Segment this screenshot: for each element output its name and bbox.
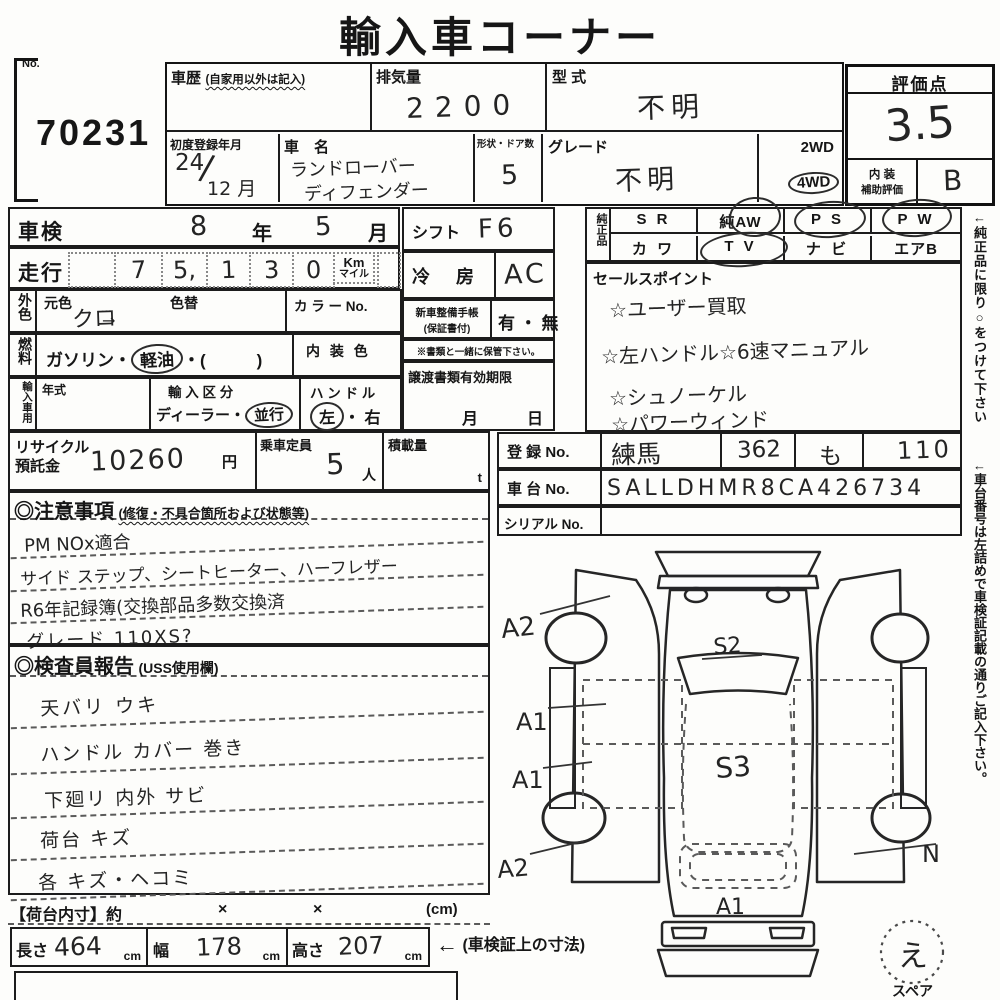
displacement-cell: 排気量 2200 xyxy=(372,64,547,132)
base-color-label: 元色 xyxy=(44,293,72,313)
handle-left-circled: 左 xyxy=(309,401,344,432)
mark-n: N xyxy=(922,840,940,868)
service-book-label-1: 新車整備手帳 xyxy=(404,305,490,320)
model-code-label: 型 式 xyxy=(552,66,586,87)
doors-cell: 形状・ドア数 5 xyxy=(475,134,543,202)
divider xyxy=(292,335,294,375)
history-cell: 車歴 (自家用以外は記入) xyxy=(167,64,372,132)
mileage-digit: 3 xyxy=(263,256,279,285)
length-label: 長さ xyxy=(16,937,48,961)
ac-box: 冷 房 AC xyxy=(402,251,555,299)
import-parallel-circled: 並行 xyxy=(244,401,293,429)
color-change-label: 色替 xyxy=(170,293,198,313)
windshield xyxy=(678,653,798,694)
recycle-row: リサイクル 預託金 10260 円 乗車定員 5 人 積載量 t xyxy=(8,431,490,491)
margin-note-oem: ←純正品に限り○をつけて下さい xyxy=(970,210,989,470)
fuel-other: ・( ) xyxy=(183,351,262,370)
mark-a2-front: A2 xyxy=(500,612,537,645)
load-label: 積載量 xyxy=(388,435,427,454)
service-book-label-2: (保証書付) xyxy=(404,320,490,335)
car-name-cell: 車 名 ランドローバー ディフェンダー xyxy=(280,134,475,202)
left-arrow-icon: ← xyxy=(436,932,458,957)
length-value: 464 xyxy=(54,931,103,962)
vin-label: 車 台 No. xyxy=(499,471,602,504)
grade-label: グレード xyxy=(548,136,608,157)
auction-sheet: 輸入車コーナー No. 70231 車歴 (自家用以外は記入) 排気量 2200… xyxy=(0,0,1000,1000)
divider xyxy=(149,379,151,429)
sales-point-line: ☆ユーザー買取 xyxy=(609,290,747,324)
transfer-docs-label: 譲渡書類有効期限 xyxy=(408,367,512,386)
fuel-row: 燃料 ガソリン・軽油・( ) 内 装 色 xyxy=(8,333,402,377)
exterior-vertical-label: 外色 xyxy=(10,291,37,331)
cargo-label: 【荷台内寸】約 xyxy=(10,901,122,925)
mark-a1-mid1: A1 xyxy=(516,708,548,736)
first-registration-month: 12 月 xyxy=(207,174,256,201)
mileage-empty-cell xyxy=(377,252,401,288)
oem-item-airbag: エアB xyxy=(872,236,960,260)
handle-dot: ・ xyxy=(344,410,360,427)
inspector-report-box: ◎検査員報告 (USS使用欄) 天バリ ウキ ハンドル カバー 巻き 下廻リ 内… xyxy=(8,645,490,895)
vin-row: 車 台 No. SALLDHMR8CA426734 xyxy=(497,469,962,506)
recycle-value: 10260 xyxy=(89,443,186,477)
transfer-docs-box: 譲渡書類有効期限 月 日 xyxy=(402,361,555,431)
registration-area: 練馬 xyxy=(610,434,661,472)
interior-color-label: 内 装 色 xyxy=(306,341,371,361)
shaken-year-unit: 年 xyxy=(252,217,272,246)
import-class-value: ディーラー・並行 xyxy=(156,402,293,428)
score-value: 3.5 xyxy=(846,89,994,163)
cargo-unit: (cm) xyxy=(426,901,458,918)
right-sill xyxy=(901,668,926,808)
spare-label: スペア xyxy=(892,983,933,999)
mileage-row: 走行 7 5, 1 3 0 Km マイル xyxy=(8,247,400,289)
notes-box: ◎注意事項 (修復・不具合箇所および状態等) PM NOx適合 サイド ステップ… xyxy=(8,491,490,645)
first-registration-cell: 初度登録年月 24 / 12 月 xyxy=(167,134,280,202)
shift-label: シフト xyxy=(412,219,460,243)
drive-2wd-label: 2WD xyxy=(801,139,834,156)
lot-number: 70231 xyxy=(36,112,151,154)
divider xyxy=(299,379,301,429)
report-subtitle: (USS使用欄) xyxy=(138,660,218,676)
registration-number: 110 xyxy=(897,435,953,465)
mileage-digit: 1 xyxy=(220,256,236,285)
mileage-unit-km: Km xyxy=(335,256,373,269)
registration-row: 登 録 No. 練馬 362 も 110 xyxy=(497,432,962,469)
mark-a2-rear: A2 xyxy=(496,853,530,884)
score-box: 評価点 3.5 内 装 補助評価 B xyxy=(845,64,995,206)
import-vertical-label: 輸入車用 xyxy=(10,379,37,429)
interior-score-label-1: 内 装 xyxy=(848,166,916,182)
ac-label: 冷 房 xyxy=(404,253,496,297)
mileage-digit-cell: 5, xyxy=(161,252,208,288)
shaken-label: 車検 xyxy=(18,216,64,246)
rear-window-inner xyxy=(690,854,786,880)
shift-box: シフト F6 xyxy=(402,207,555,251)
height-unit: cm xyxy=(405,949,422,963)
front-bumper xyxy=(656,552,820,576)
import-dealer-option: ディーラー xyxy=(156,407,230,424)
fuel-vertical-label: 燃料 xyxy=(10,335,37,375)
mileage-label: 走行 xyxy=(18,257,64,287)
rear-bumper xyxy=(662,922,814,946)
divider xyxy=(382,433,384,489)
transfer-month-label: 月 xyxy=(462,405,478,429)
car-name-label: 車 名 xyxy=(284,136,329,157)
car-damage-diagram: A2 A1 A1 A2 N S2 S3 A1 え スペア xyxy=(488,538,962,1000)
rear-window-outer xyxy=(680,844,796,888)
ac-value: AC xyxy=(503,258,547,290)
doors-label: 形状・ドア数 xyxy=(477,136,534,150)
divider xyxy=(862,434,864,467)
grade-cell: グレード 不明 xyxy=(543,134,759,202)
fuel-diesel-circled: 軽油 xyxy=(130,343,183,376)
width-unit: cm xyxy=(263,949,280,963)
mark-s3: S3 xyxy=(714,750,752,785)
service-book-box: 新車整備手帳 (保証書付) 有 ・ 無 xyxy=(402,299,555,339)
shift-value: F6 xyxy=(477,213,518,244)
mileage-digit: 5, xyxy=(173,256,197,285)
shaken-row: 車検 8 年 5 月 xyxy=(8,207,400,247)
vin-value: SALLDHMR8CA426734 xyxy=(607,476,925,501)
wheel-front-right xyxy=(872,614,928,662)
oem-item-navi: ナ ビ xyxy=(785,236,872,260)
recycle-unit: 円 xyxy=(222,451,237,472)
model-year-label: 年式 xyxy=(42,381,66,398)
shaken-year-value: 8 xyxy=(189,211,207,243)
mark-a1-mid2: A1 xyxy=(512,766,544,794)
service-book-value: 有 ・ 無 xyxy=(498,309,558,334)
leader-a2-rear xyxy=(530,841,584,854)
mileage-digit-cell: 1 xyxy=(206,252,251,288)
wheel-front-left xyxy=(546,613,606,663)
cargo-x1: × xyxy=(218,901,227,919)
recycle-label-2: 預託金 xyxy=(15,455,60,476)
width-label: 幅 xyxy=(153,937,169,961)
sales-point-line: ☆左ハンドル☆6速マニュアル xyxy=(601,331,870,369)
documents-note: ※書類と一緒に保管下さい。 xyxy=(402,339,555,361)
cargo-header: 【荷台内寸】約 × × (cm) xyxy=(8,897,490,925)
mileage-unit-mile: マイル xyxy=(335,269,373,280)
model-code-value: 不明 xyxy=(636,85,705,127)
car-name-line2: ディフェンダー xyxy=(304,176,430,206)
leader-a1-mid1 xyxy=(548,704,606,708)
fuel-gasoline: ガソリン・ xyxy=(46,351,131,370)
oem-item-sr: S R xyxy=(611,209,698,234)
lot-bracket-line xyxy=(14,58,17,202)
mark-a1-rear: A1 xyxy=(716,895,745,920)
color-change-arrow: → xyxy=(102,311,115,330)
interior-score-label-2: 補助評価 xyxy=(848,182,916,197)
color-no-label: カ ラ ー No. xyxy=(294,295,368,315)
capacity-value: 5 xyxy=(325,447,345,482)
registration-label: 登 録 No. xyxy=(499,434,602,467)
drive-4wd-selected: 4WD xyxy=(787,171,839,196)
divider xyxy=(285,291,287,331)
width-value: 178 xyxy=(196,932,243,962)
history-sublabel: (自家用以外は記入) xyxy=(205,74,305,86)
shaken-month-unit: 月 xyxy=(368,217,388,246)
doors-value: 5 xyxy=(500,160,518,192)
capacity-label: 乗車定員 xyxy=(260,435,312,454)
cutoff-row xyxy=(14,971,458,1000)
lot-bracket-tick-bottom xyxy=(14,199,38,202)
divider xyxy=(794,434,796,467)
import-row: 輸入車用 年式 輸 入 区 分 ディーラー・並行 ハ ン ド ル 左・ 右 xyxy=(8,377,402,431)
rear-light-left xyxy=(672,928,706,938)
handle-label: ハ ン ド ル xyxy=(310,382,375,402)
serial-label: シリアル No. xyxy=(499,508,602,534)
notes-title: ◎注意事項 xyxy=(14,501,114,523)
margin-note-vin: ←車台番号は左詰めで車検証記載の通りご記入下さい。 xyxy=(970,458,989,858)
transfer-day-label: 日 xyxy=(527,405,543,429)
cowl-bar xyxy=(658,576,818,588)
model-code-cell: 型 式 不明 xyxy=(547,64,842,132)
sales-points-box: セールスポイント ☆ユーザー買取 ☆左ハンドル☆6速マニュアル ☆シュノーケル … xyxy=(585,262,962,432)
serial-row: シリアル No. xyxy=(497,506,962,536)
history-label: 車歴 xyxy=(171,70,201,87)
registration-class: 362 xyxy=(737,436,782,464)
displacement-label: 排気量 xyxy=(376,66,421,87)
mileage-digit: 0 xyxy=(305,256,321,285)
mileage-digit: 7 xyxy=(130,256,146,285)
rear-light-right xyxy=(770,928,804,938)
width-cell: 幅 178 cm xyxy=(148,929,288,965)
drive-type-cell: 2WD 4WD xyxy=(759,134,842,202)
mileage-unit-cell: Km マイル xyxy=(333,252,375,284)
oem-vertical-label: 純正品 xyxy=(587,209,611,260)
mileage-digit-cell: 3 xyxy=(249,252,294,288)
oem-item-kawa: カ ワ xyxy=(611,236,698,260)
mileage-digit-cell: 0 xyxy=(292,252,335,288)
mark-s2: S2 xyxy=(713,633,743,660)
handle-right-option: 右 xyxy=(364,410,380,427)
sales-points-label: セールスポイント xyxy=(587,264,960,289)
lot-label: No. xyxy=(22,58,40,70)
rear-step xyxy=(658,950,818,976)
height-value: 207 xyxy=(338,931,385,961)
grade-value: 不明 xyxy=(614,157,679,198)
displacement-value: 2200 xyxy=(405,88,521,125)
fuel-options: ガソリン・軽油・( ) xyxy=(46,344,262,374)
handle-value: 左・ 右 xyxy=(310,402,381,431)
recycle-label-1: リサイクル xyxy=(15,436,89,457)
length-cell: 長さ 464 cm xyxy=(12,929,148,965)
divider xyxy=(720,434,722,467)
mileage-digit-cell xyxy=(68,252,116,288)
dimension-table: 長さ 464 cm 幅 178 cm 高さ 207 cm xyxy=(10,927,430,967)
report-title: ◎検査員報告 xyxy=(14,656,134,678)
header-table: 車歴 (自家用以外は記入) 排気量 2200 型 式 不明 初度登録年月 24 … xyxy=(165,62,844,206)
page-title: 輸入車コーナー xyxy=(280,4,720,65)
exterior-color-row: 外色 元色 クロ → 色替 カ ラ ー No. xyxy=(8,289,402,333)
import-sep: ・ xyxy=(230,407,245,424)
registration-kana: も xyxy=(818,437,842,472)
height-cell: 高さ 207 cm xyxy=(288,929,428,965)
shaken-month-value: 5 xyxy=(314,212,332,243)
length-unit: cm xyxy=(124,949,141,963)
spare-mark: え xyxy=(898,939,928,974)
left-sill xyxy=(550,668,575,808)
divider xyxy=(255,433,257,489)
cargo-x2: × xyxy=(313,901,322,919)
import-class-label: 輸 入 区 分 xyxy=(168,381,233,401)
mileage-digit-cell: 7 xyxy=(114,252,163,288)
capacity-unit: 人 xyxy=(362,465,376,485)
height-label: 高さ xyxy=(292,937,324,961)
load-unit: t xyxy=(478,470,482,485)
interior-score-value: B xyxy=(942,164,962,198)
